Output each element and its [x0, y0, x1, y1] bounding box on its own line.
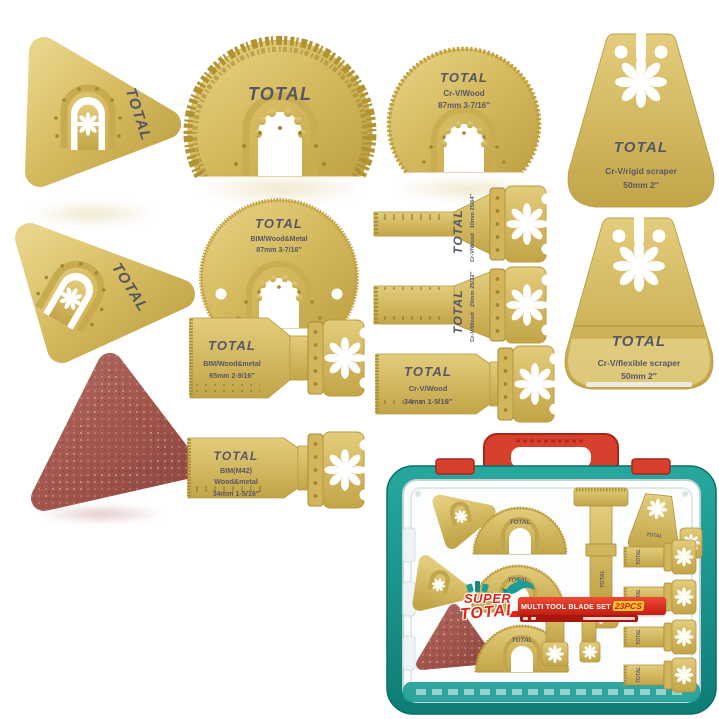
- blade-size: 50mm 2″: [623, 180, 659, 190]
- blade-rigid-scraper: TOTAL Cr-V/rigid scraper 50mm 2″: [564, 30, 718, 218]
- sandpaper-texture: [44, 366, 186, 498]
- case-latch: [632, 459, 670, 474]
- total-logo: TOTAL: [636, 667, 642, 683]
- mount-notch: [615, 46, 628, 59]
- mount-plate: [308, 320, 371, 396]
- total-logo: TOTAL: [214, 449, 259, 463]
- total-logo: TOTAL: [440, 70, 488, 85]
- sanding-pad: [16, 354, 198, 512]
- mount-slot: [634, 214, 644, 244]
- mount-cutout: [613, 240, 665, 292]
- blade-spec: BIM/Wood&Metal: [250, 236, 307, 243]
- mount-plate: [490, 267, 553, 343]
- product-photo: TOTAL TOTAL: [0, 0, 719, 719]
- mount-notch: [653, 230, 666, 243]
- piece-count-badge: 23PCS: [612, 601, 644, 611]
- side-hole: [216, 289, 227, 300]
- total-logo: TOTAL: [451, 289, 465, 334]
- blade-neck: [290, 336, 308, 380]
- total-logo: TOTAL: [255, 216, 303, 231]
- ruler-ticks: [382, 287, 444, 294]
- substrip-mark: [583, 617, 635, 620]
- mount-notch: [613, 230, 626, 243]
- total-logo: TOTAL: [509, 519, 530, 526]
- blade-semicircle-crv-wood: TOTAL Cr-V/Wood 87mm 3-7/16″: [384, 44, 544, 176]
- size-text: 20mm 25/32″: [470, 271, 476, 307]
- blade-plunge-65mm: TOTAL BIM/Wood&metal 65mm 2-9/16″: [184, 310, 364, 406]
- blade-spec: Cr-V/Wood: [409, 384, 448, 393]
- blade-size: 87mm 3-7/16″: [256, 247, 302, 254]
- handle-hole: [511, 447, 591, 468]
- blade-triangle-rasp-2: TOTAL: [10, 214, 200, 356]
- mount-slot: [636, 30, 646, 60]
- blade-size: 87mm 3-7/16″: [438, 101, 490, 110]
- blade-plunge-20mm: TOTAL Cr-V/Wood20mm 25/32″: [372, 264, 552, 346]
- total-logo: TOTAL: [612, 333, 667, 350]
- banner-substrip: [520, 615, 638, 622]
- blade-triangle-rasp-1: TOTAL: [14, 32, 182, 204]
- blade-edge-strip: [586, 382, 692, 387]
- ruler-ticks: [382, 316, 444, 323]
- substrip-mark: [523, 617, 528, 620]
- blade-size: 34mm 1-5/16″: [213, 489, 260, 498]
- ruler-ticks: [384, 213, 442, 220]
- substrip-mark: [531, 617, 536, 620]
- total-logo: TOTAL: [208, 338, 256, 353]
- triangle-pad-shape: [30, 238, 180, 348]
- blade-size: 50mm 2″: [621, 371, 657, 381]
- carry-case: TOTAL TOTAL TOTAL: [384, 432, 719, 719]
- lid-pin: [415, 491, 421, 497]
- blade-plunge-34mm-bim: TOTAL BIM(M42) Wood&metal 34mm 1-5/16″: [184, 426, 366, 514]
- mount-plate: [490, 186, 553, 262]
- blade-neck: [298, 446, 308, 490]
- total-logo: TOTAL: [636, 549, 642, 565]
- product-banner: MULTI TOOL BLADE SET 23PCS: [518, 597, 666, 615]
- total-logo: TOTAL: [248, 84, 312, 104]
- blade-spec: Cr-V/Wood20mm 25/32″: [470, 271, 476, 342]
- spec-text: Cr-V/Wood: [470, 233, 476, 262]
- blade-size: 34mm 1-5/16″: [404, 397, 453, 406]
- blade-plunge-34mm-crv: TOTAL Cr-V/Wood 34mm 1-5/16″: [372, 338, 554, 430]
- mount-plate: [308, 432, 371, 508]
- blade-spec: BIM(M42): [220, 466, 253, 475]
- blade-spec: Cr-V/Wood10mm 25/64″: [470, 193, 476, 262]
- mount-plate: [498, 346, 561, 422]
- total-logo: TOTAL: [614, 139, 669, 156]
- mount-cutout: [615, 56, 667, 108]
- total-logo-text: TOTAL: [459, 602, 517, 625]
- blade-spec: Cr-V/flexible scraper: [598, 358, 681, 368]
- banner-text: MULTI TOOL BLADE SET: [521, 602, 611, 611]
- blade-spec2: Wood&metal: [214, 477, 258, 486]
- blade-grit-semicircle: TOTAL: [184, 38, 376, 178]
- blade-spec: Cr-V/rigid scraper: [605, 166, 677, 176]
- mount-notch: [655, 46, 668, 59]
- size-text: 10mm 25/64″: [470, 193, 476, 228]
- total-logo: TOTAL: [451, 209, 465, 254]
- blade-plunge-10mm: TOTAL Cr-V/Wood10mm 25/64″: [372, 184, 548, 264]
- case-latch: [436, 459, 474, 474]
- side-hole: [332, 289, 343, 300]
- case-label: SUPER TOTAL MULTI TOOL BLADE SET 23PCS: [460, 578, 670, 642]
- lid-pin: [682, 491, 688, 497]
- total-logo: TOTAL: [404, 364, 452, 379]
- blade-flexible-scraper: TOTAL Cr-V/flexible scraper 50mm 2″: [560, 214, 718, 396]
- ruler-ticks: [196, 384, 260, 392]
- blade-size: 65mm 2-9/16″: [209, 373, 255, 380]
- blade-spec: Cr-V/Wood: [443, 89, 484, 98]
- blade-spec: BIM/Wood&metal: [203, 361, 260, 368]
